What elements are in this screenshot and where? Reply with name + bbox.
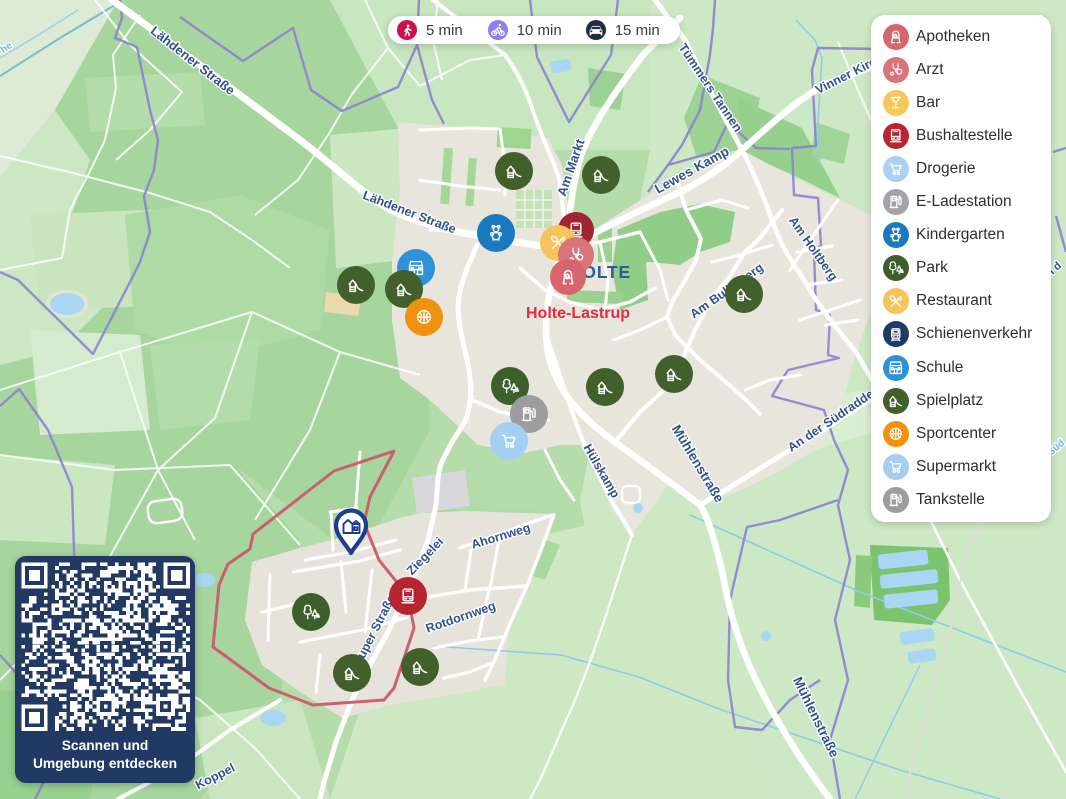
svg-text:Holte-Lastrup: Holte-Lastrup bbox=[526, 305, 630, 322]
